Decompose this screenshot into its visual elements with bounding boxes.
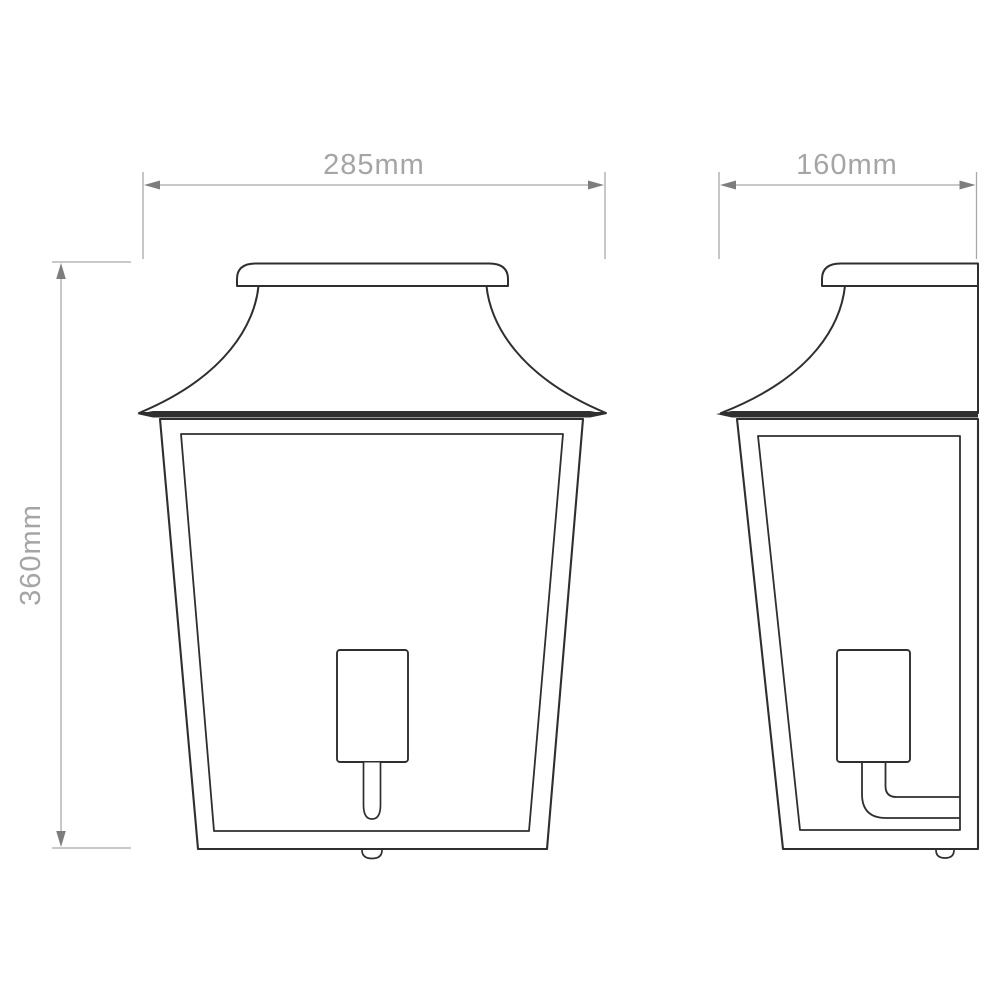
arrowhead-right-icon (588, 181, 604, 190)
arrowhead-down-icon (56, 831, 66, 847)
front-candle-stem (364, 763, 381, 820)
dimension-height: 360mm (15, 262, 131, 848)
side-bottom-finial (936, 850, 954, 858)
side-brim (716, 411, 978, 418)
side-cap (822, 264, 978, 287)
front-width-label: 285mm (323, 149, 425, 181)
front-elevation-view (137, 264, 607, 859)
front-brim (137, 411, 607, 418)
dimension-drawing-page: 285mm 160mm 360mm (0, 0, 1000, 1000)
side-depth-label: 160mm (796, 149, 898, 181)
front-roof (139, 286, 606, 413)
front-bottom-finial (362, 850, 382, 859)
arrowhead-up-icon (56, 263, 66, 279)
dimension-side-depth: 160mm (719, 149, 977, 259)
side-lamp-holder (837, 650, 910, 762)
arrowhead-left-icon (720, 181, 736, 190)
dimension-drawing-canvas: 285mm 160mm 360mm (0, 0, 1000, 1000)
front-lamp-holder (337, 650, 408, 762)
side-body-outer (737, 419, 978, 849)
height-label: 360mm (15, 504, 47, 606)
arrowhead-left-icon (144, 181, 160, 190)
arrowhead-right-icon (960, 181, 976, 190)
front-cap (237, 264, 508, 287)
side-roof (721, 286, 978, 413)
side-elevation-view (716, 264, 978, 859)
dimension-front-width: 285mm (143, 149, 605, 259)
